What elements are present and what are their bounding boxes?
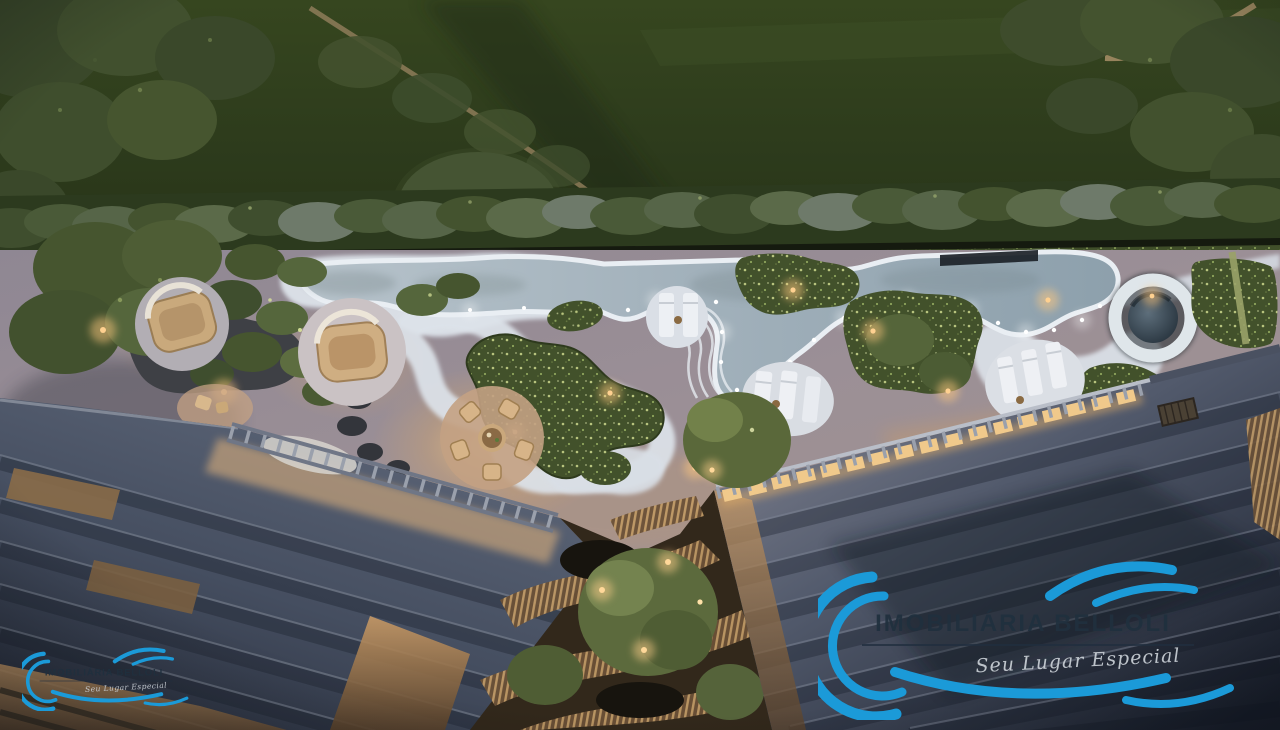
aerial-dusk-render: IMOBILIÁRIA BELLOLI Seu Lugar Especial I… — [0, 0, 1280, 730]
vignette — [0, 0, 1280, 730]
scene-illustration — [0, 0, 1280, 730]
